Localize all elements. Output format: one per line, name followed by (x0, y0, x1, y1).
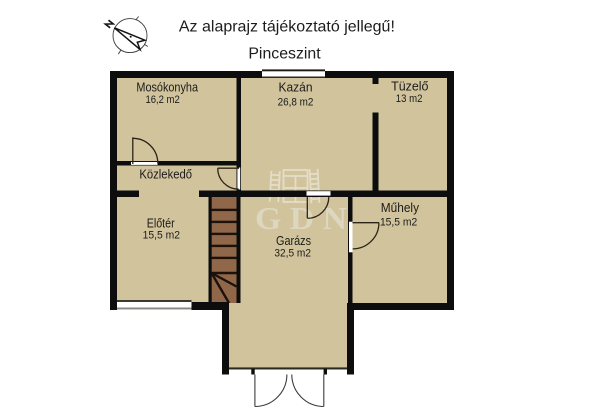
svg-text:Kazán: Kazán (279, 80, 313, 95)
svg-text:G D N: G D N (255, 200, 347, 236)
svg-text:13 m2: 13 m2 (396, 93, 423, 105)
svg-text:Mosókonyha: Mosókonyha (136, 79, 198, 94)
svg-text:26,8 m2: 26,8 m2 (278, 96, 314, 108)
svg-text:Pinceszint: Pinceszint (248, 45, 321, 62)
svg-text:Műhely: Műhely (381, 200, 420, 215)
svg-text:32,5 m2: 32,5 m2 (274, 248, 311, 260)
svg-text:15,5 m2: 15,5 m2 (143, 229, 180, 241)
svg-text:Garázs: Garázs (276, 233, 311, 248)
svg-text:Előtér: Előtér (147, 216, 175, 231)
svg-text:Közlekedő: Közlekedő (139, 167, 192, 182)
svg-text:16,2 m2: 16,2 m2 (145, 94, 179, 106)
svg-text:Az alaprajz tájékoztató jelleg: Az alaprajz tájékoztató jellegű! (179, 19, 395, 36)
svg-text:15,5 m2: 15,5 m2 (380, 216, 417, 228)
svg-text:Tüzelő: Tüzelő (391, 79, 428, 94)
